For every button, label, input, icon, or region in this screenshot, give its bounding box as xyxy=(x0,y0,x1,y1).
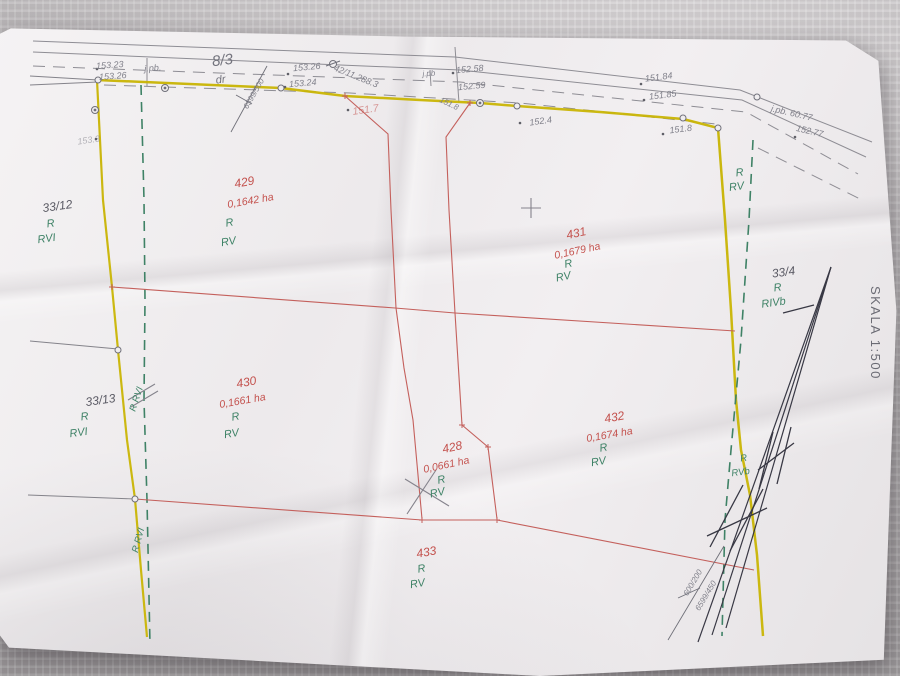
jpb-width-label: j.pb. 60.77 xyxy=(769,103,814,123)
edge-class-note: RV xyxy=(728,180,746,194)
photo-of-cadastral-map: 153.23 153.26 j.pb. 8/3 dr 153.26 153.24… xyxy=(0,0,900,676)
survey-markers xyxy=(92,61,761,503)
land-class: RV xyxy=(590,455,609,470)
measurement-label: 153.26 xyxy=(293,61,321,73)
red-bottom-line xyxy=(135,499,754,570)
survey-point-id: 6599/500 xyxy=(242,77,267,111)
land-class: R xyxy=(563,257,573,270)
road-parcel-number: 8/3 xyxy=(211,51,234,70)
survey-point-id: 600/200 xyxy=(682,568,705,598)
red-vertex-marks xyxy=(109,93,500,523)
parcel-number: 33/12 xyxy=(42,197,74,215)
parcel-number: 430 xyxy=(235,373,257,390)
boundary-point xyxy=(115,347,121,353)
pen-fan-tick xyxy=(783,305,814,313)
line-class-note: R RVI xyxy=(128,385,146,413)
red-vertex xyxy=(419,517,425,523)
measurement-label: 152.59 xyxy=(458,80,486,92)
land-class: R xyxy=(80,411,90,424)
land-class: RVI xyxy=(69,426,89,440)
measurement-label-red: 151.7 xyxy=(352,102,381,118)
land-class: R xyxy=(231,410,241,423)
parcel-area: 0,1674 ha xyxy=(585,425,633,445)
measurement-label: 152.77 xyxy=(795,123,825,139)
map-labels: 153.23 153.26 j.pb. 8/3 dr 153.26 153.24… xyxy=(37,51,883,613)
pen-annotations xyxy=(698,267,831,642)
land-class: R xyxy=(46,218,56,231)
red-vertex xyxy=(494,517,500,523)
boundary-point xyxy=(754,94,760,100)
parcel-area: 0,0661 ha xyxy=(422,454,470,475)
boundary-point xyxy=(715,125,721,131)
land-class: RVI xyxy=(37,232,57,246)
parcel-number: 432 xyxy=(603,408,625,425)
red-middle-line xyxy=(112,287,735,331)
land-class: R xyxy=(436,473,446,486)
land-class: R xyxy=(417,562,427,575)
land-class: R xyxy=(225,216,235,229)
jpb-label: j.pb. xyxy=(143,62,162,73)
parcel-area: 0,1679 ha xyxy=(553,240,601,261)
scale-label: SKALA 1:500 xyxy=(868,286,883,380)
land-class: RIVb xyxy=(761,295,787,310)
dimension-label: 42/11.288.3 xyxy=(333,63,380,90)
parcel-number: 33/13 xyxy=(85,391,117,409)
measurement-label: 151.8 xyxy=(438,95,460,112)
land-class: RV xyxy=(555,269,574,284)
measurement-label: 153.26 xyxy=(99,70,127,82)
measurement-label: 151.8 xyxy=(669,123,693,136)
side-line-low xyxy=(28,495,135,499)
side-line-mid xyxy=(30,341,118,349)
parcel-number: 428 xyxy=(441,438,464,456)
land-class: RV xyxy=(223,427,242,442)
measurement-label: 152.4 xyxy=(529,115,553,128)
boundary-point xyxy=(278,85,284,91)
red-vertex xyxy=(109,284,115,290)
pen-fan-line xyxy=(698,267,831,642)
parcel-number: 429 xyxy=(233,173,255,190)
measurement-label: 152.58 xyxy=(456,63,484,75)
measurement-label: 153.24 xyxy=(289,77,317,89)
land-class: R xyxy=(773,282,783,295)
land-class: RV xyxy=(429,485,448,500)
land-class: RV xyxy=(220,235,239,250)
jpb-label: j.pb xyxy=(421,69,436,79)
survey-point-leaders xyxy=(231,66,724,640)
boundary-point xyxy=(132,496,138,502)
pen-fan-line xyxy=(712,267,831,635)
parcel-number: 33/4 xyxy=(771,263,796,280)
edge-class-note: R xyxy=(735,167,745,180)
corner-line-b xyxy=(30,82,98,85)
road-use-label: dr xyxy=(215,73,227,86)
land-class: R xyxy=(599,441,609,454)
parcel-number: 431 xyxy=(565,224,588,242)
yellow-right-boundary xyxy=(718,128,763,636)
measurement-label: 153.23 xyxy=(96,59,124,71)
measurement-label: 153.3 xyxy=(77,134,101,147)
parcel-area: 0,1661 ha xyxy=(218,391,266,411)
road-dashed-right xyxy=(758,148,862,200)
pencil-marks xyxy=(128,198,541,514)
land-class: RV xyxy=(409,577,428,592)
green-dashed-left xyxy=(141,85,150,645)
parcel-number: 433 xyxy=(415,543,437,560)
edge-class-note: R xyxy=(739,453,747,465)
boundary-point xyxy=(514,103,520,109)
line-class-note: R RVI xyxy=(130,526,147,554)
corner-line-a xyxy=(30,76,98,80)
pencil-plus-mark xyxy=(521,198,541,218)
cadastral-drawing: 153.23 153.26 j.pb. 8/3 dr 153.26 153.24… xyxy=(0,0,900,676)
measurement-label: 151.85 xyxy=(648,88,678,101)
road-dashed-lower xyxy=(104,85,716,124)
parcel-area: 0,1642 ha xyxy=(226,191,274,211)
boundary-point xyxy=(680,115,686,121)
